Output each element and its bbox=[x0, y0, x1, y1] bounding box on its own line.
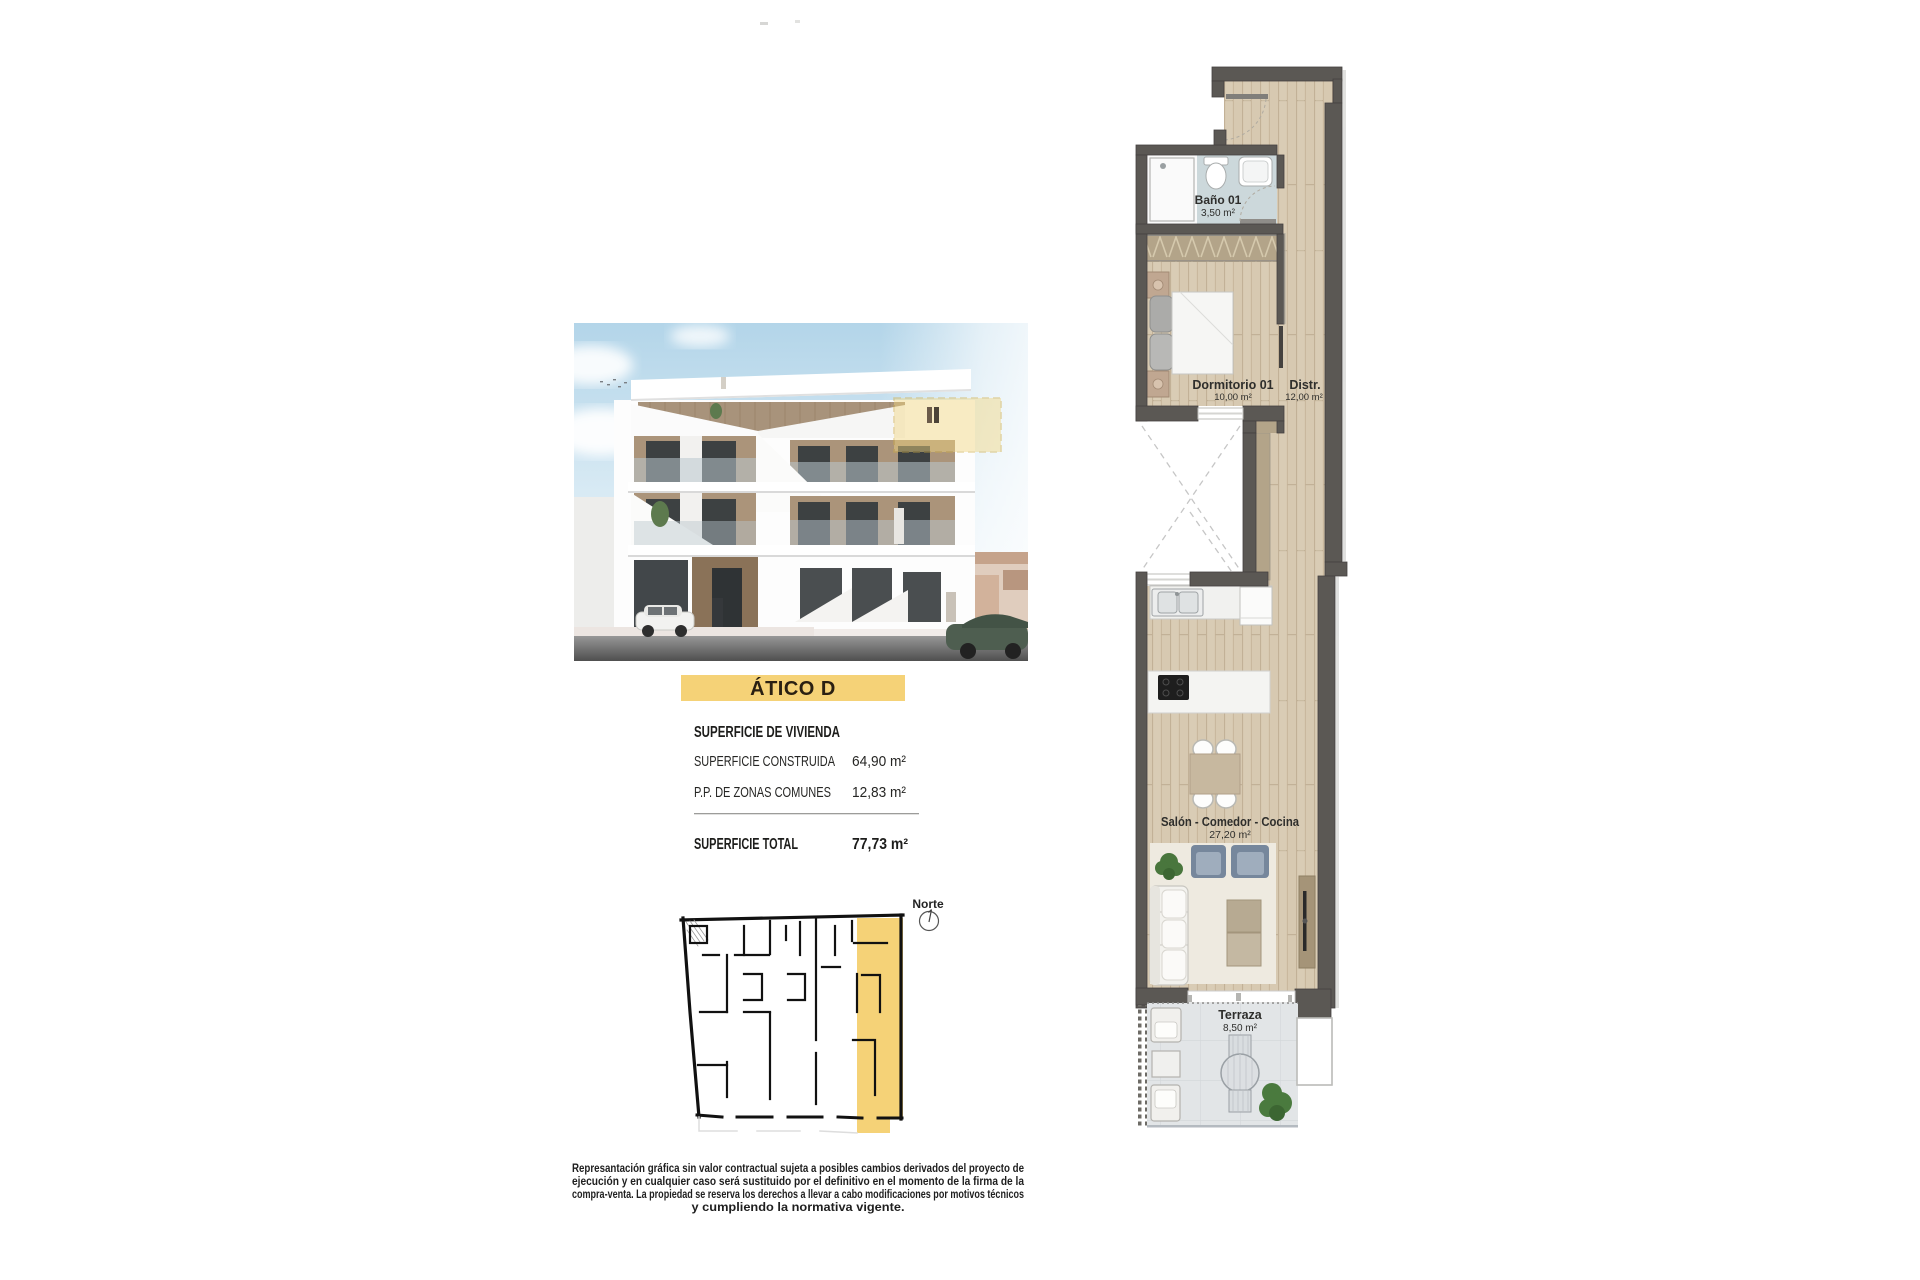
svg-text:Dormitorio 01: Dormitorio 01 bbox=[1192, 378, 1273, 392]
svg-text:compra-venta. La propiedad se: compra-venta. La propiedad se reserva lo… bbox=[572, 1187, 1024, 1201]
svg-text:Distr.: Distr. bbox=[1289, 378, 1320, 392]
svg-text:ÁTICO D: ÁTICO D bbox=[750, 677, 836, 700]
svg-text:Represantación gráfica sin val: Represantación gráfica sin valor contrac… bbox=[572, 1161, 1024, 1175]
svg-text:SUPERFICIE TOTAL: SUPERFICIE TOTAL bbox=[694, 836, 798, 853]
svg-text:y cumpliendo la normativa vige: y cumpliendo la normativa vigente. bbox=[692, 1200, 905, 1214]
svg-text:Terraza: Terraza bbox=[1218, 1008, 1263, 1022]
svg-text:P.P. DE ZONAS COMUNES: P.P. DE ZONAS COMUNES bbox=[694, 784, 831, 801]
svg-text:77,73 m²: 77,73 m² bbox=[852, 836, 908, 853]
svg-text:3,50 m²: 3,50 m² bbox=[1201, 208, 1236, 219]
svg-text:12,83 m²: 12,83 m² bbox=[852, 784, 906, 801]
svg-text:SUPERFICIE CONSTRUIDA: SUPERFICIE CONSTRUIDA bbox=[694, 753, 835, 770]
svg-text:Salón - Comedor - Cocina: Salón - Comedor - Cocina bbox=[1161, 814, 1300, 829]
svg-text:Baño 01: Baño 01 bbox=[1195, 193, 1242, 207]
svg-text:12,00 m²: 12,00 m² bbox=[1285, 392, 1323, 403]
svg-text:27,20 m²: 27,20 m² bbox=[1209, 829, 1251, 841]
svg-text:ejecución y en cualquier caso: ejecución y en cualquier caso será susti… bbox=[572, 1174, 1024, 1188]
svg-text:10,00 m²: 10,00 m² bbox=[1214, 392, 1252, 403]
svg-text:64,90 m²: 64,90 m² bbox=[852, 753, 906, 770]
svg-text:SUPERFICIE DE VIVIENDA: SUPERFICIE DE VIVIENDA bbox=[694, 724, 840, 741]
svg-text:8,50 m²: 8,50 m² bbox=[1223, 1023, 1258, 1034]
svg-text:Norte: Norte bbox=[912, 897, 944, 911]
